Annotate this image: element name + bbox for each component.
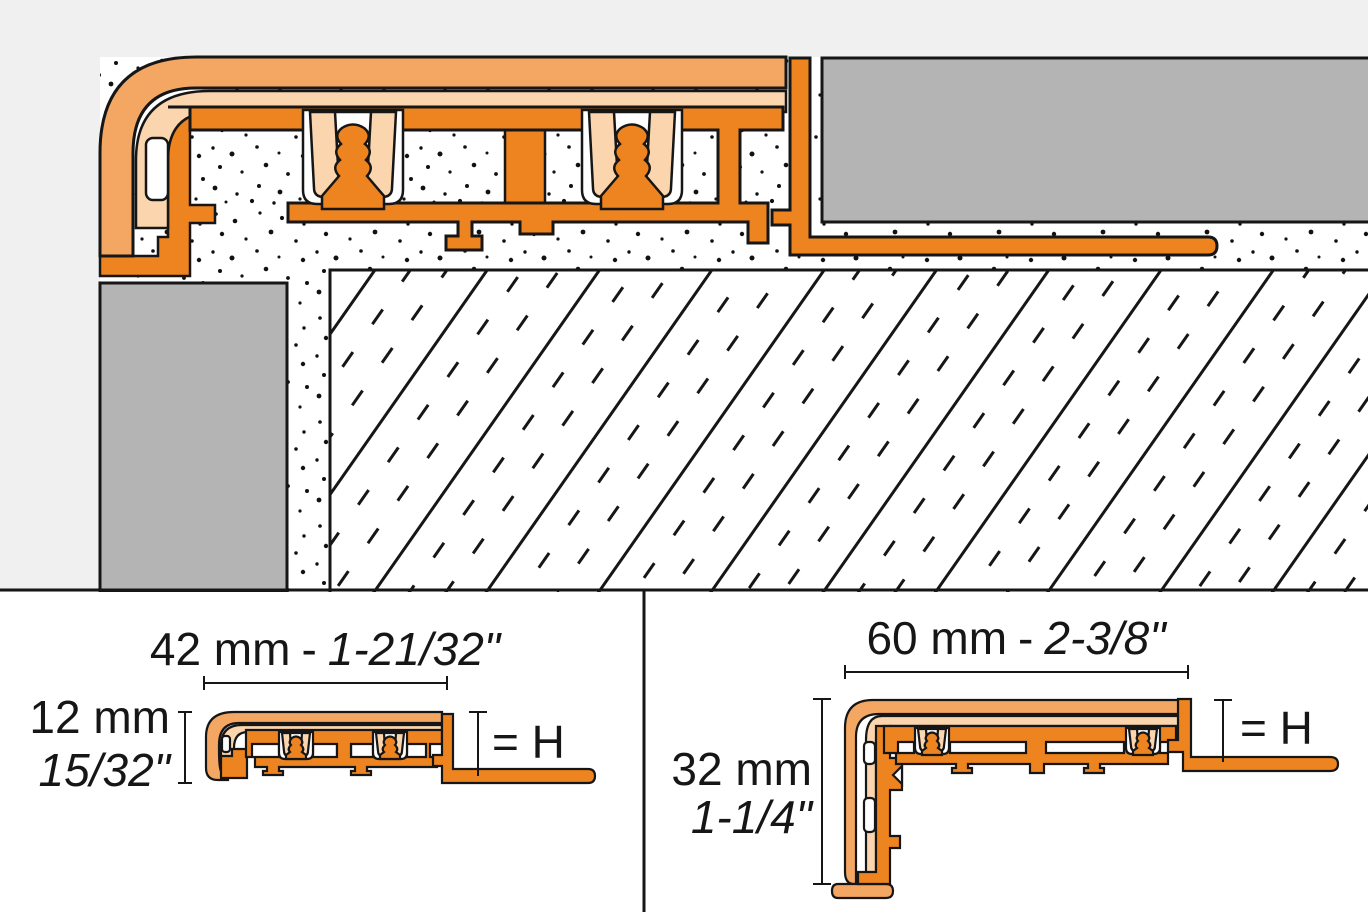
- insert-notch: [146, 138, 168, 200]
- leg-notch: [864, 798, 875, 832]
- height-metric-label: 32 mm: [671, 743, 812, 795]
- technical-drawing-svg: 42 mm-1-21/32" 12 mm 15/32": [0, 0, 1368, 912]
- width-dimension-label: 60 mm-2-3/8": [866, 612, 1168, 664]
- height-imperial-label: 15/32": [39, 744, 173, 796]
- height-imperial-label: 1-1/4": [691, 791, 815, 843]
- anchor-slot: [915, 728, 949, 755]
- anchor-slot: [373, 732, 407, 759]
- anchor-slot: [303, 110, 403, 209]
- anchor-slot: [582, 110, 682, 209]
- installation-section: [0, 0, 1368, 592]
- leg-notch: [864, 742, 875, 764]
- anchor-slot: [279, 732, 313, 759]
- h-reference-label: = H: [1240, 702, 1313, 754]
- wall-tile: [100, 283, 287, 592]
- h-reference-label: = H: [492, 716, 565, 768]
- substrate-hatch: [330, 270, 1368, 592]
- insert-bottom-foot: [832, 884, 893, 898]
- profile-mid-web: [505, 128, 545, 206]
- anchor-slot: [1126, 728, 1160, 755]
- height-metric-label: 12 mm: [29, 691, 170, 743]
- floor-tile: [822, 58, 1368, 222]
- technical-drawing-page: 42 mm-1-21/32" 12 mm 15/32": [0, 0, 1368, 912]
- insert-notch: [222, 736, 230, 752]
